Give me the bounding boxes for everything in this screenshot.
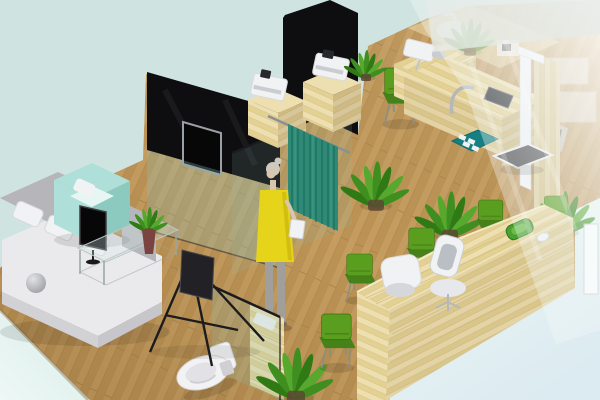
clipboard [289, 219, 305, 239]
scene-canvas: 3D isometric rendering of a clinic inter… [0, 0, 600, 400]
counter-end-face [357, 292, 390, 400]
person-face [267, 170, 276, 179]
dome-lamp [26, 273, 46, 293]
person-hair-bun [275, 158, 282, 165]
person-leg [277, 262, 285, 322]
isometric-clinic-scene [0, 0, 600, 400]
white-mullion [584, 224, 598, 294]
person-neck [270, 180, 276, 190]
